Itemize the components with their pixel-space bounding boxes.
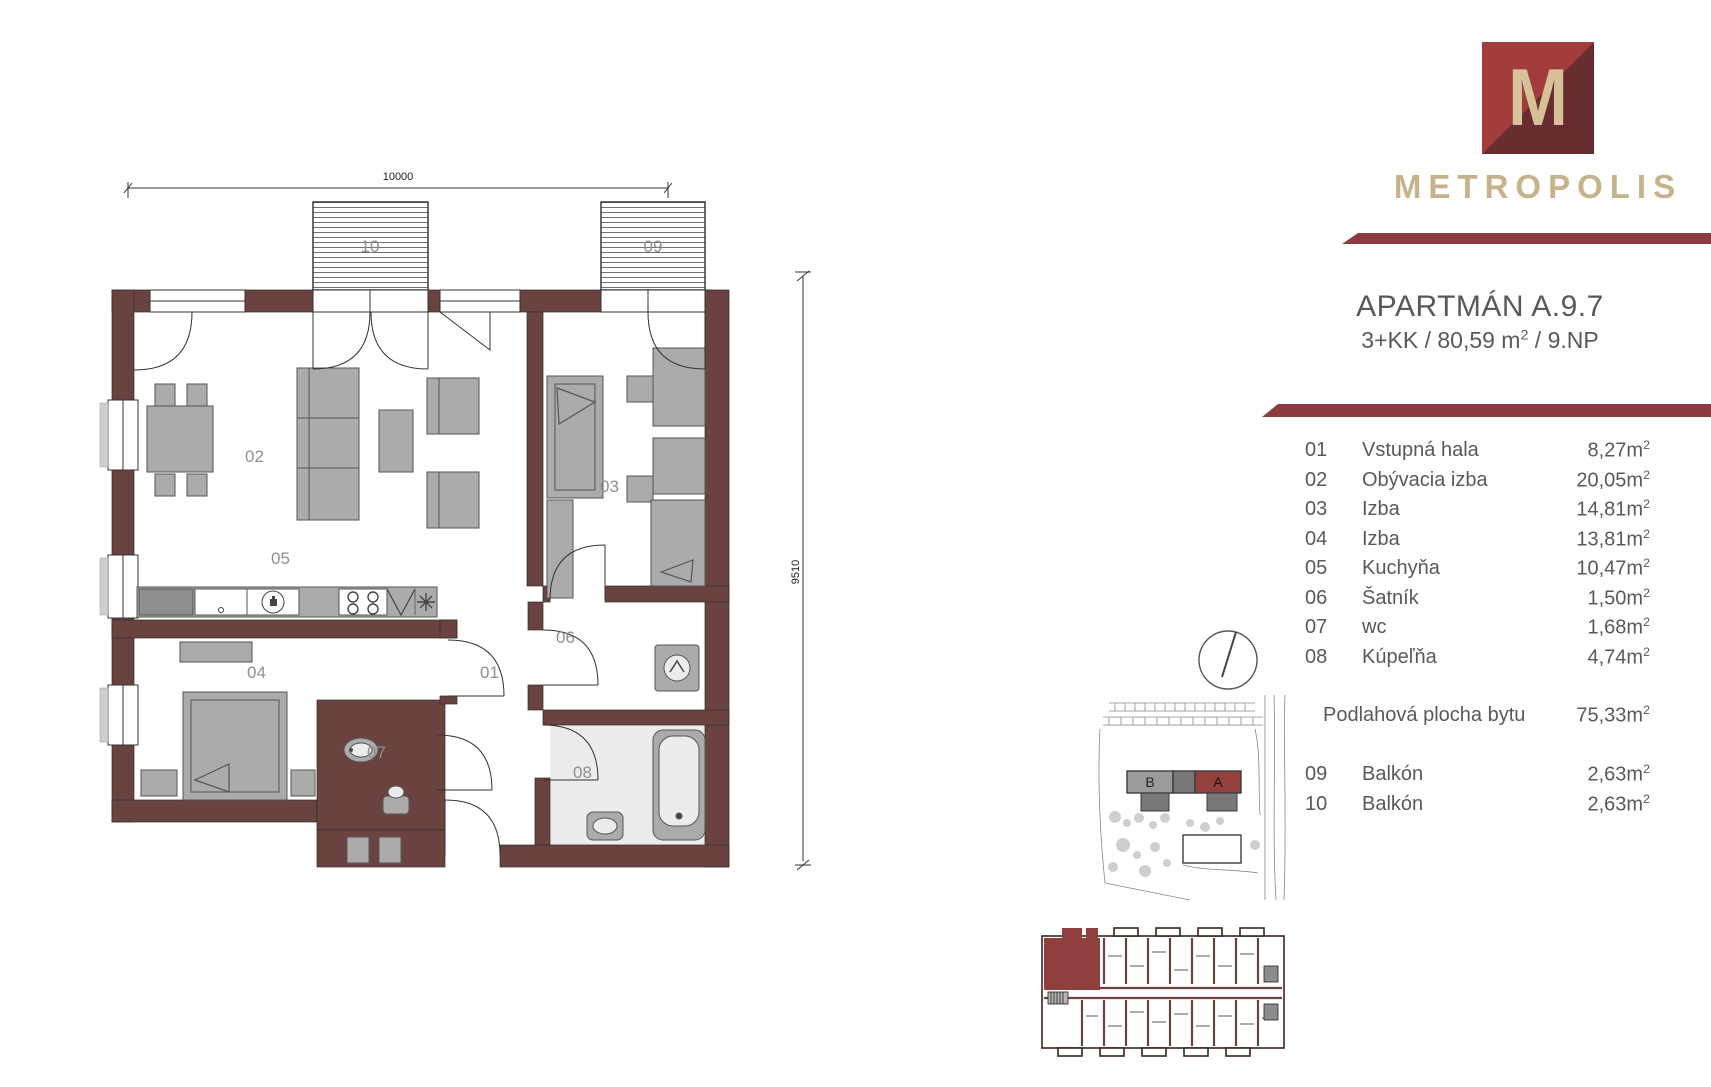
north-compass-icon [1195, 625, 1265, 695]
row-name: Balkón [1362, 793, 1587, 816]
site-buildings [1127, 771, 1241, 863]
table-row: 02Obývacia izba20,05m2 [1305, 466, 1650, 496]
site-roads [1099, 695, 1285, 900]
row-area: 2,63m2 [1587, 762, 1650, 787]
subtitle-text: 3+KK / 80,59 m [1361, 327, 1520, 353]
row-area: 1,68m2 [1587, 615, 1650, 640]
balcony-09: 09 [601, 202, 705, 290]
row-number: 10 [1305, 793, 1362, 816]
washing-machine-icon [655, 645, 699, 691]
row-name: wc [1362, 616, 1587, 639]
row-number: 04 [1305, 528, 1362, 551]
room-label-03: 03 [600, 477, 619, 496]
row-number: 02 [1305, 469, 1362, 492]
row-area: 10,47m2 [1576, 556, 1650, 581]
table-row: 04Izba13,81m2 [1305, 525, 1650, 555]
row-number: 06 [1305, 587, 1362, 610]
site-building-a-label: A [1213, 774, 1223, 790]
row-name: Vstupná hala [1362, 439, 1587, 462]
room-label-02: 02 [245, 447, 264, 466]
balcony-09-label: 09 [644, 237, 663, 256]
site-plan: B A [1095, 695, 1300, 900]
table-row: 05Kuchyňa10,47m2 [1305, 554, 1650, 584]
balcony-10-label: 10 [361, 237, 380, 256]
dimension-width-label: 10000 [383, 171, 414, 183]
row-name: Kúpeľňa [1362, 646, 1587, 669]
row-number: 09 [1305, 763, 1362, 786]
brand-logo: M [1482, 42, 1594, 154]
row-name: Kuchyňa [1362, 557, 1576, 580]
row-number: 08 [1305, 646, 1362, 669]
row-area: 14,81m2 [1576, 497, 1650, 522]
room-label-08: 08 [573, 763, 592, 782]
logo-letter: M [1508, 58, 1568, 139]
table-row: 10Balkón2,63m2 [1305, 790, 1650, 820]
row-area: 2,63m2 [1587, 792, 1650, 817]
row-area: 4,74m2 [1587, 645, 1650, 670]
row-number: 01 [1305, 439, 1362, 462]
table-row: 01Vstupná hala8,27m2 [1305, 436, 1650, 466]
row-name: Šatník [1362, 587, 1587, 610]
table-row: 03Izba14,81m2 [1305, 495, 1650, 525]
balcony-10: 10 [313, 202, 428, 290]
row-number: 03 [1305, 498, 1362, 521]
row-name: Izba [1362, 498, 1576, 521]
apartment-sheet: 10000 9510 10 09 [0, 0, 1711, 1087]
row-area: 13,81m2 [1576, 527, 1650, 552]
room-label-07: 07 [367, 743, 386, 762]
room-label-05: 05 [271, 549, 290, 568]
row-name: Obývacia izba [1362, 469, 1576, 492]
row-name: Balkón [1362, 763, 1587, 786]
total-label: Podlahová plocha bytu [1323, 704, 1576, 727]
dimension-height-label: 9510 [790, 560, 802, 584]
table-row: 07wc1,68m2 [1305, 613, 1650, 643]
floor-locator-plan [1038, 926, 1288, 1058]
accent-bar-title [1262, 404, 1711, 417]
room-table: 01Vstupná hala8,27m2 02Obývacia izba20,0… [1305, 436, 1650, 819]
apartment-title: APARTMÁN A.9.7 [1280, 290, 1680, 324]
subtitle-text-post: / 9.NP [1528, 327, 1598, 353]
row-number: 07 [1305, 616, 1362, 639]
site-building-b-label: B [1145, 774, 1154, 790]
row-number: 05 [1305, 557, 1362, 580]
row-area: 8,27m2 [1587, 438, 1650, 463]
accent-bar-top [1342, 233, 1711, 244]
total-area: 75,33m2 [1576, 703, 1650, 728]
table-row: 09Balkón2,63m2 [1305, 760, 1650, 790]
brand-wordmark: METROPOLIS [1382, 168, 1694, 206]
room-label-01: 01 [480, 663, 499, 682]
row-area: 1,50m2 [1587, 586, 1650, 611]
room-label-04: 04 [247, 663, 266, 682]
row-name: Izba [1362, 528, 1576, 551]
row-area: 20,05m2 [1576, 468, 1650, 493]
locator-stairs [1048, 992, 1068, 1004]
table-row: 08Kúpeľňa4,74m2 [1305, 643, 1650, 673]
windows [100, 290, 705, 745]
table-row: 06Šatník1,50m2 [1305, 584, 1650, 614]
room-label-06: 06 [556, 628, 575, 647]
apartment-subtitle: 3+KK / 80,59 m2 / 9.NP [1280, 327, 1680, 354]
kitchen-counter [137, 587, 437, 617]
table-total-row: Podlahová plocha bytu75,33m2 [1305, 700, 1650, 730]
floor-plan: 10000 9510 10 09 [95, 140, 815, 885]
